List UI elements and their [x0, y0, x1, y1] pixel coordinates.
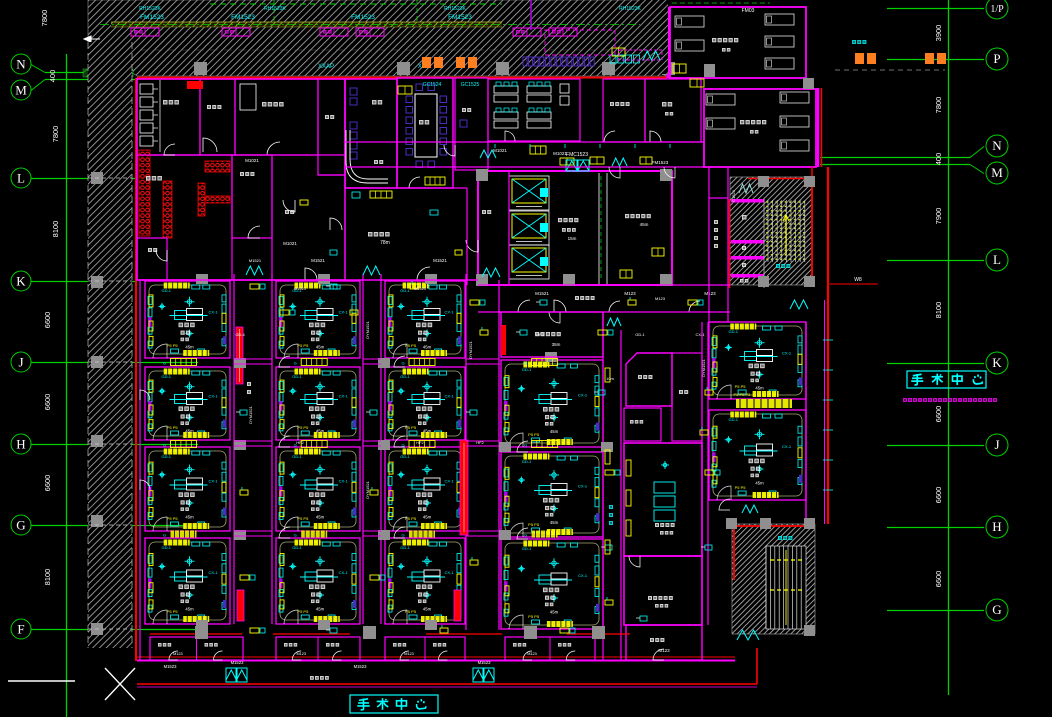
svg-text:3900: 3900: [934, 25, 943, 42]
svg-text:45m: 45m: [185, 428, 194, 433]
svg-text:M123: M123: [527, 652, 537, 656]
svg-text:GD-1: GD-1: [522, 546, 532, 551]
svg-text:P5 P5: P5 P5: [297, 343, 309, 348]
svg-text:CX-1: CX-1: [578, 484, 588, 489]
svg-text:CX-1: CX-1: [339, 478, 349, 483]
svg-text:P5 P5 P5: P5 P5 P5: [734, 392, 752, 397]
svg-text:M1521: M1521: [414, 286, 427, 291]
svg-text:CX-1: CX-1: [339, 570, 349, 575]
svg-text:45m: 45m: [185, 514, 194, 519]
svg-text:M1021: M1021: [245, 158, 259, 163]
svg-text:GC1524: GC1524: [423, 82, 442, 88]
svg-text:G: G: [16, 518, 25, 533]
svg-text:M1021: M1021: [493, 148, 507, 153]
svg-text:M1521: M1521: [311, 258, 325, 263]
svg-text:GD-1: GD-1: [400, 288, 410, 293]
svg-text:GD-1: GD-1: [161, 374, 171, 379]
svg-text:8100: 8100: [51, 221, 60, 238]
svg-text:RH1523K: RH1523K: [619, 6, 641, 12]
svg-text:M1521: M1521: [535, 291, 549, 296]
svg-text:15m: 15m: [568, 236, 577, 241]
svg-text:FMC1523: FMC1523: [566, 152, 588, 158]
svg-text:CX-1: CX-1: [782, 444, 792, 449]
svg-text:P5 P5: P5 P5: [167, 609, 179, 614]
svg-text:P5 P5: P5 P5: [297, 609, 309, 614]
svg-text:6600: 6600: [934, 571, 943, 588]
svg-text:8100: 8100: [43, 569, 52, 586]
svg-text:XXAP: XXAP: [318, 64, 334, 70]
svg-text:G: G: [294, 533, 297, 538]
svg-text:M1523: M1523: [231, 660, 244, 665]
svg-text:M: M: [15, 83, 27, 98]
svg-text:N: N: [16, 57, 26, 72]
svg-text:HF3: HF3: [536, 332, 544, 337]
svg-text:P5 P5: P5 P5: [735, 384, 747, 389]
svg-text:P5 P5: P5 P5: [528, 522, 540, 527]
svg-text:M1521: M1521: [249, 258, 262, 263]
svg-text:CX-1: CX-1: [208, 394, 218, 399]
svg-text:C1523: C1523: [731, 189, 736, 202]
svg-text:45m: 45m: [316, 428, 325, 433]
svg-text:M1521: M1521: [294, 286, 307, 291]
svg-text:CX-1: CX-1: [339, 309, 349, 314]
svg-text:FM1523: FM1523: [140, 14, 164, 21]
svg-text:M123: M123: [624, 291, 636, 296]
svg-text:P5 P5: P5 P5: [167, 425, 179, 430]
svg-text:M123: M123: [704, 291, 716, 296]
svg-text:CX-1: CX-1: [578, 573, 588, 578]
svg-text:GD-1: GD-1: [292, 545, 302, 550]
svg-text:45m: 45m: [550, 610, 559, 615]
svg-text:G: G: [524, 361, 527, 366]
svg-text:G: G: [401, 443, 404, 448]
svg-text:G: G: [163, 443, 166, 448]
svg-text:1/P: 1/P: [990, 4, 1004, 15]
svg-text:P5 P5: P5 P5: [167, 343, 179, 348]
svg-text:GD-1: GD-1: [635, 332, 645, 337]
svg-text:400: 400: [934, 153, 943, 166]
svg-text:45m: 45m: [423, 606, 432, 611]
svg-text:J: J: [18, 355, 23, 370]
svg-text:P5 P5: P5 P5: [735, 485, 747, 490]
svg-text:RH1523K: RH1523K: [139, 6, 161, 12]
svg-text:G: G: [401, 361, 404, 366]
svg-text:M1523: M1523: [478, 660, 491, 665]
svg-text:6600: 6600: [43, 475, 52, 492]
svg-text:CX-1: CX-1: [578, 393, 588, 398]
svg-text:GD-1: GD-1: [400, 545, 410, 550]
svg-text:DYM1521: DYM1521: [468, 340, 473, 359]
svg-text:GD-1: GD-1: [728, 417, 738, 422]
svg-text:GD-1: GD-1: [292, 374, 302, 379]
svg-text:M123: M123: [296, 652, 306, 656]
svg-text:P5 P5: P5 P5: [297, 425, 309, 430]
svg-text:45m: 45m: [316, 345, 325, 350]
svg-text:P: P: [993, 51, 1000, 66]
svg-text:GD-1: GD-1: [522, 367, 532, 372]
svg-text:RH1523K: RH1523K: [444, 6, 466, 12]
svg-text:HF2: HF2: [416, 440, 424, 445]
svg-text:H: H: [16, 437, 25, 452]
svg-text:CX-1: CX-1: [444, 309, 454, 314]
svg-text:H: H: [992, 519, 1001, 534]
svg-text:HF2: HF2: [296, 440, 304, 445]
svg-text:P5 P5: P5 P5: [297, 516, 309, 521]
svg-text:M123: M123: [655, 296, 666, 301]
svg-text:RH1523K: RH1523K: [264, 6, 286, 12]
svg-text:6600: 6600: [934, 487, 943, 504]
svg-text:G: G: [163, 533, 166, 538]
svg-text:F: F: [17, 622, 24, 637]
svg-text:G: G: [524, 533, 527, 538]
svg-text:DYM1521: DYM1521: [365, 480, 370, 499]
svg-text:CX-1: CX-1: [339, 394, 349, 399]
svg-text:GD-1: GD-1: [400, 374, 410, 379]
svg-text:GD-1: GD-1: [161, 288, 171, 293]
svg-text:P5 P5: P5 P5: [528, 614, 540, 619]
svg-text:45m: 45m: [755, 481, 764, 486]
svg-text:J: J: [994, 437, 999, 452]
svg-text:FM03: FM03: [742, 8, 755, 14]
svg-text:K: K: [16, 274, 26, 289]
svg-text:8100: 8100: [934, 302, 943, 319]
svg-text:GD-1: GD-1: [522, 459, 532, 464]
svg-text:G: G: [163, 361, 166, 366]
svg-text:FM1523: FM1523: [231, 14, 255, 21]
svg-text:6600: 6600: [43, 394, 52, 411]
svg-text:7800: 7800: [51, 126, 60, 143]
svg-text:GC1525: GC1525: [461, 82, 480, 88]
svg-text:GD-1: GD-1: [400, 454, 410, 459]
svg-text:M123: M123: [404, 652, 414, 656]
svg-text:P5 P5: P5 P5: [167, 516, 179, 521]
svg-text:45m: 45m: [316, 606, 325, 611]
svg-text:45m: 45m: [550, 429, 559, 434]
svg-text:G: G: [401, 533, 404, 538]
svg-text:45m: 45m: [185, 345, 194, 350]
svg-text:45m: 45m: [316, 514, 325, 519]
svg-text:DYM1521: DYM1521: [248, 405, 253, 424]
svg-text:G: G: [992, 602, 1001, 617]
svg-text:M123: M123: [173, 652, 183, 656]
svg-text:GD-1: GD-1: [728, 329, 738, 334]
svg-text:M1521: M1521: [433, 258, 447, 263]
svg-text:GD-1: GD-1: [161, 545, 171, 550]
svg-text:M1021: M1021: [283, 241, 297, 246]
svg-text:6600: 6600: [934, 406, 943, 423]
svg-text:M123: M123: [658, 648, 670, 653]
svg-text:400: 400: [48, 70, 57, 83]
svg-text:CX-1: CX-1: [444, 394, 454, 399]
svg-text:45m: 45m: [755, 386, 764, 391]
svg-text:45m: 45m: [423, 345, 432, 350]
svg-text:FM1523: FM1523: [652, 160, 669, 165]
svg-text:78m: 78m: [380, 240, 390, 246]
svg-text:L: L: [993, 252, 1001, 267]
svg-text:P5 P5: P5 P5: [528, 432, 540, 437]
svg-text:45m: 45m: [185, 606, 194, 611]
svg-text:FM1523: FM1523: [351, 14, 375, 21]
svg-text:45m: 45m: [550, 520, 559, 525]
svg-text:45m: 45m: [423, 428, 432, 433]
svg-text:CX-1: CX-1: [695, 332, 705, 337]
svg-text:M1523: M1523: [164, 664, 177, 669]
svg-text:K: K: [992, 355, 1002, 370]
svg-text:CX-1: CX-1: [208, 309, 218, 314]
svg-text:M: M: [991, 165, 1003, 180]
svg-text:DYM1521: DYM1521: [365, 320, 370, 339]
svg-text:CX-1: CX-1: [782, 350, 792, 355]
svg-text:CX-1: CX-1: [444, 570, 454, 575]
svg-text:6600: 6600: [43, 312, 52, 329]
svg-text:7900: 7900: [934, 208, 943, 225]
svg-text:W8: W8: [854, 277, 862, 283]
svg-text:45m: 45m: [423, 514, 432, 519]
svg-text:GD-4: GD-4: [235, 332, 245, 337]
svg-text:45m: 45m: [640, 222, 649, 227]
svg-text:N: N: [992, 138, 1002, 153]
svg-text:G: G: [524, 443, 527, 448]
svg-text:CX-1: CX-1: [208, 570, 218, 575]
svg-text:M1523: M1523: [354, 664, 367, 669]
svg-text:7800: 7800: [40, 10, 49, 27]
svg-text:35m: 35m: [552, 342, 561, 347]
svg-text:GD-1: GD-1: [292, 454, 302, 459]
svg-text:GD-1: GD-1: [161, 454, 171, 459]
svg-text:L: L: [17, 171, 25, 186]
svg-text:CX-1: CX-1: [444, 478, 454, 483]
svg-text:G: G: [294, 361, 297, 366]
svg-text:7800: 7800: [934, 97, 943, 114]
svg-text:FM1523: FM1523: [448, 14, 472, 21]
svg-text:CX-1: CX-1: [208, 478, 218, 483]
